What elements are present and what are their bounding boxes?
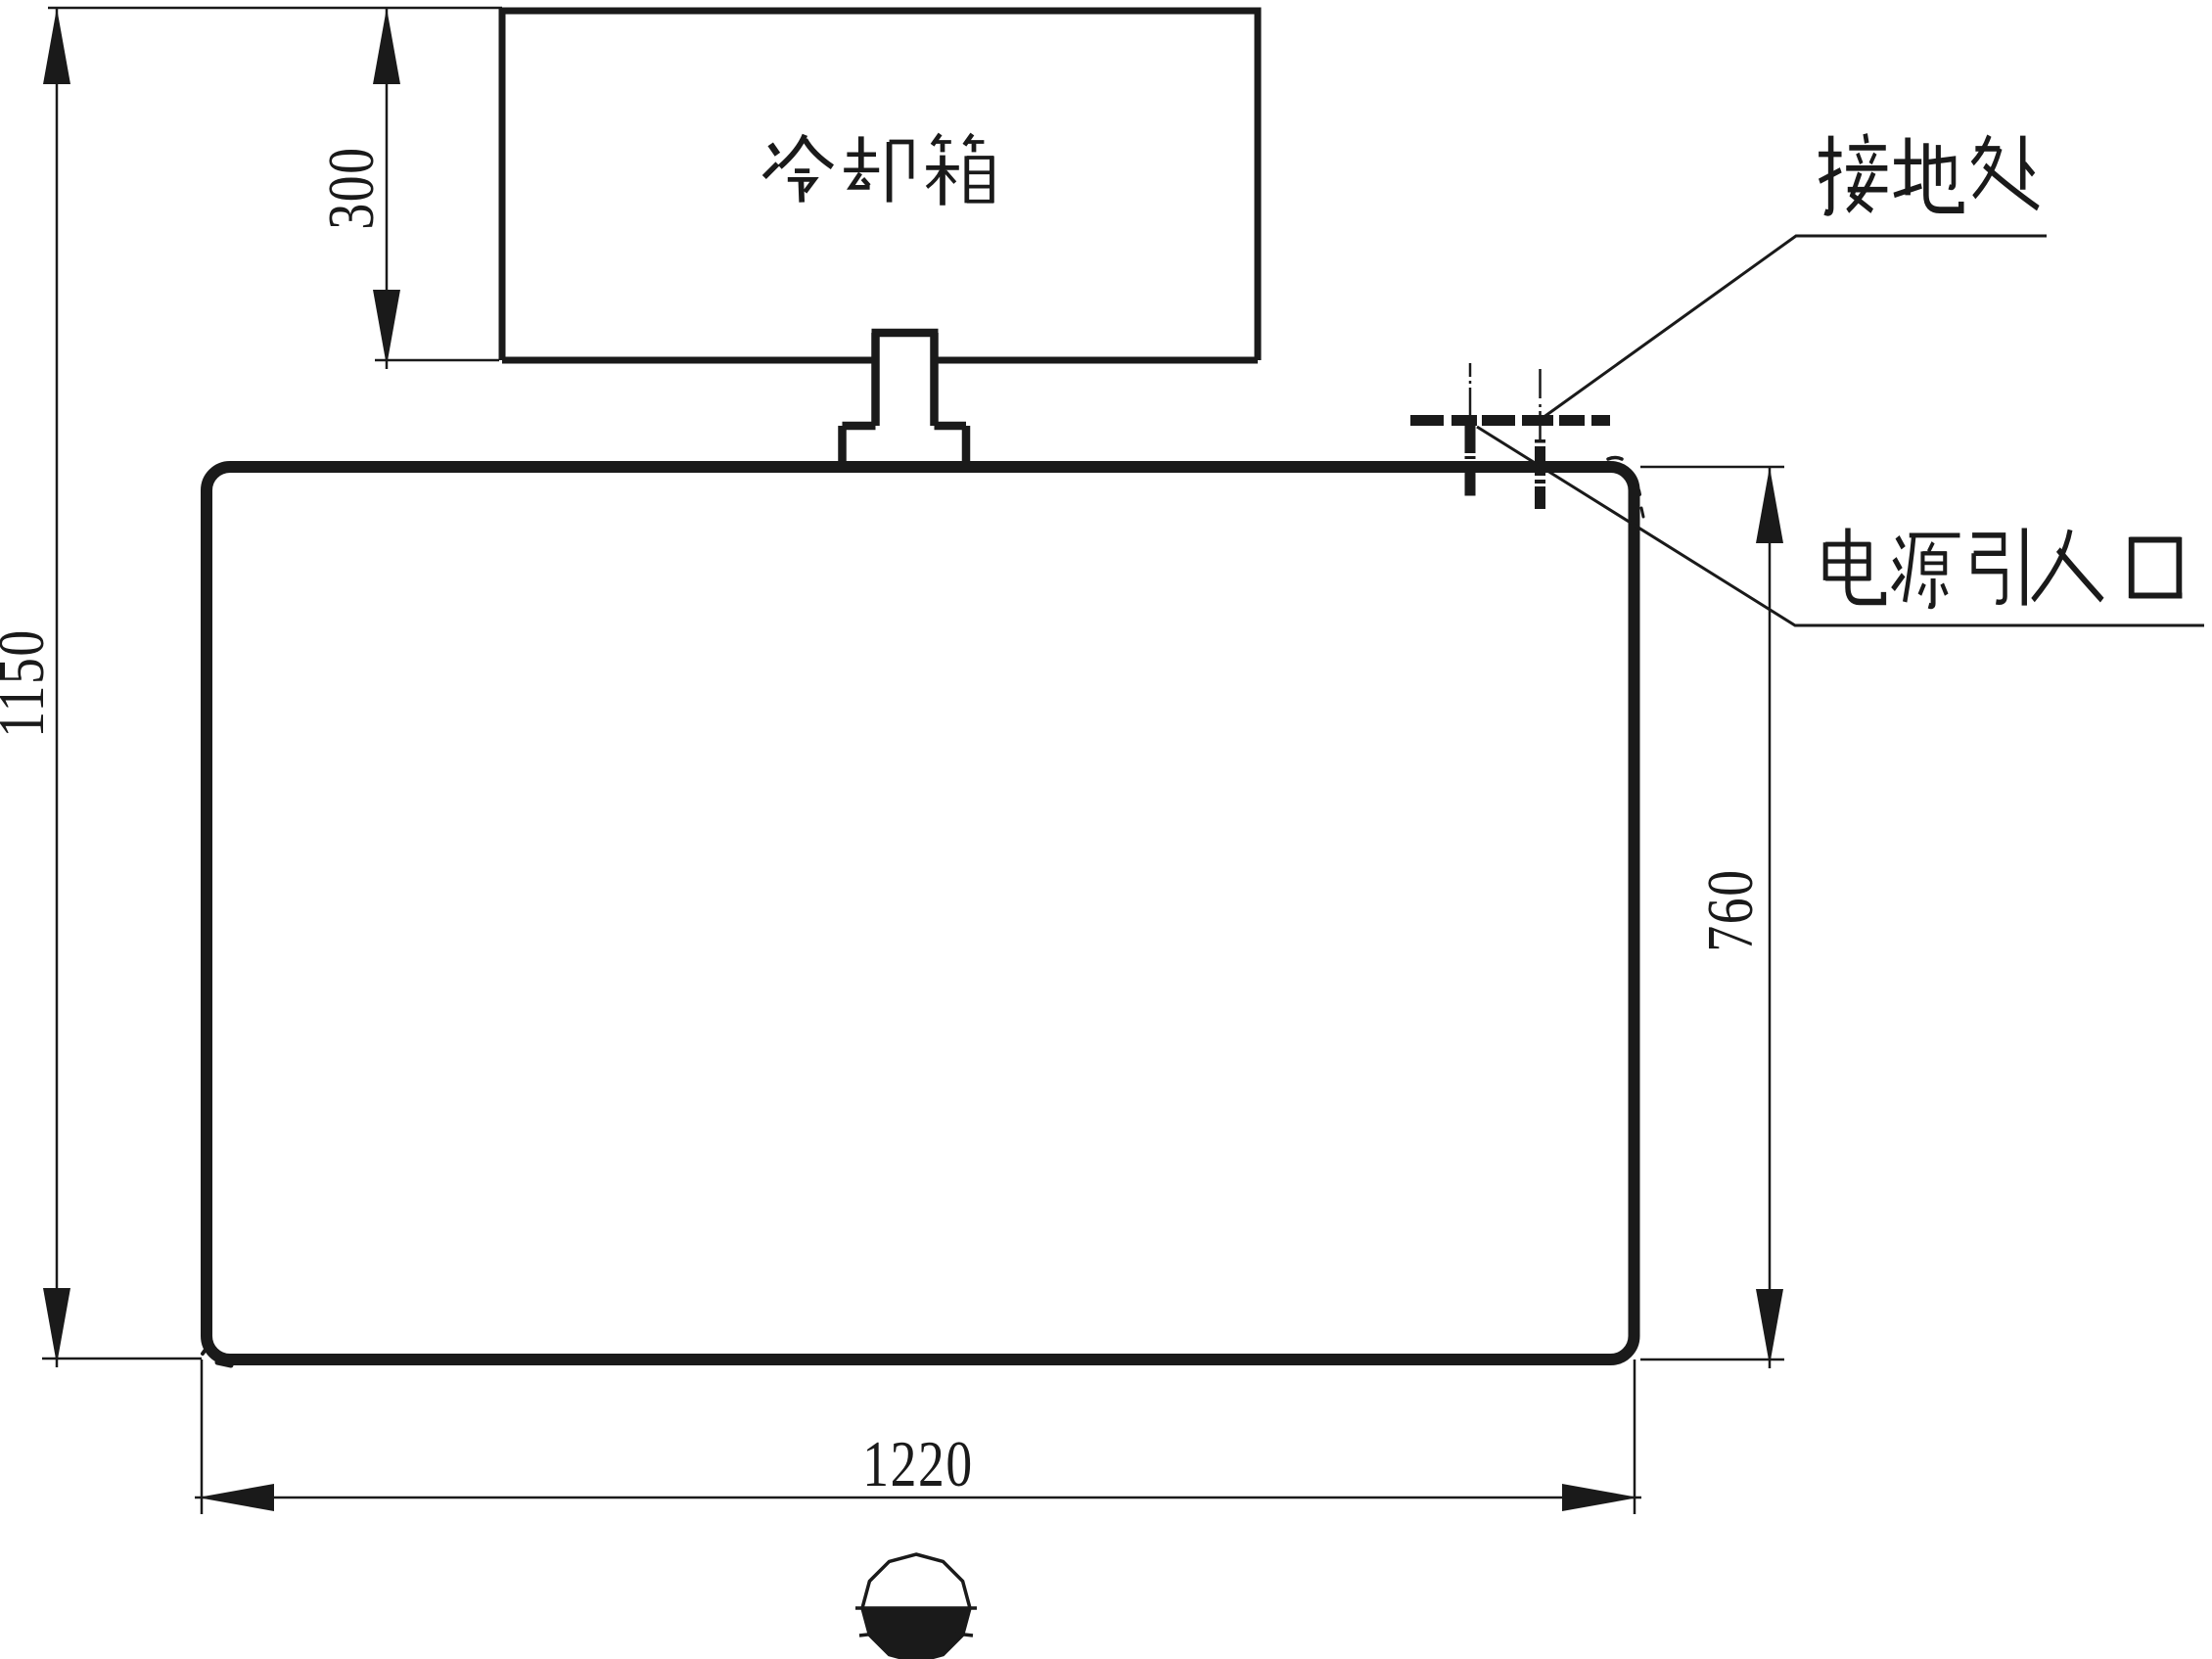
svg-text:1150: 1150 — [0, 628, 58, 738]
svg-text:1220: 1220 — [862, 1428, 974, 1500]
svg-text:760: 760 — [1694, 868, 1767, 951]
svg-text:300: 300 — [315, 146, 388, 229]
